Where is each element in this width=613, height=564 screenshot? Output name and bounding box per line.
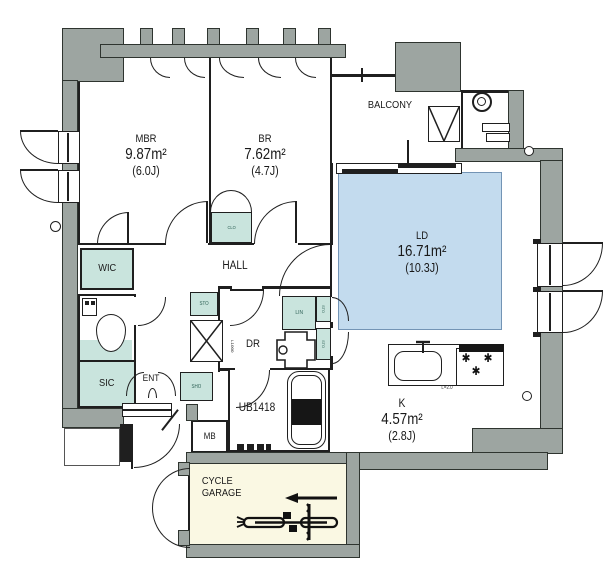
cabinet-door-arc: [332, 332, 349, 364]
bath-faucet-icon: [257, 444, 264, 450]
genkan-step: [122, 410, 172, 417]
kitchen-sink-icon: [394, 351, 442, 381]
k-jo: (2.8J): [388, 429, 415, 444]
lin-closet: LIN: [282, 296, 316, 330]
stove-burner-icon: ✱: [462, 352, 471, 365]
mbr-jo: (6.0J): [132, 164, 159, 179]
garage-line2: GARAGE: [202, 488, 258, 500]
br-jo: (4.7J): [251, 164, 278, 179]
ld-area: 16.71m²: [398, 243, 447, 261]
stove-burner-icon: ✱: [484, 352, 493, 365]
wall-merlon: [246, 28, 259, 45]
k-area: 4.57m²: [381, 411, 422, 429]
window-arc: [563, 291, 603, 333]
garage-door-arc: [152, 508, 190, 548]
sliding-sash: [398, 164, 456, 168]
wall-merlon: [318, 28, 331, 45]
stove-burner-icon: ✱: [472, 365, 481, 378]
wall: [352, 452, 548, 470]
toilet-button: [91, 301, 95, 305]
wall-merlon: [207, 28, 220, 45]
clo-closet: CLO: [211, 212, 252, 243]
washing-machine-icon: [190, 320, 223, 362]
mbr-area: 9.87m²: [125, 146, 166, 164]
dr-label: DR: [240, 338, 266, 350]
sto-label: STO: [199, 301, 208, 307]
bathtub-dark-band: [292, 399, 321, 425]
window-sash: [67, 172, 69, 201]
bath-faucet-icon: [237, 444, 244, 450]
balcony-rail-tick: [361, 68, 363, 82]
drain-cap-inner: [477, 97, 486, 106]
window-sash: [549, 245, 551, 285]
wall: [100, 44, 346, 58]
ld-jo: (10.3J): [405, 261, 438, 276]
sho-label: SHO: [192, 384, 202, 390]
window-arc: [563, 243, 603, 286]
wall-line: [330, 163, 333, 245]
mbr-name: MBR: [135, 133, 156, 146]
clo-label: CLO: [227, 225, 235, 230]
br-name: BR: [258, 133, 271, 146]
wall-line: [218, 368, 230, 371]
step-icon: [486, 133, 510, 142]
door-panel: [131, 424, 133, 469]
window: [58, 131, 80, 164]
wall: [472, 428, 563, 454]
door-arc: [279, 244, 330, 296]
ub-label: UB1418: [232, 402, 281, 415]
door-stop-icon: [148, 388, 157, 398]
wall: [395, 42, 461, 92]
faucet-icon: [412, 339, 434, 355]
bath-faucet-icon: [247, 444, 254, 450]
sliding-sash: [342, 169, 398, 173]
wall-merlon: [140, 28, 153, 45]
door-line: [330, 245, 332, 297]
entrance-door-arc: [134, 424, 180, 468]
genkan-step: [122, 403, 172, 410]
door-arc: [138, 297, 166, 326]
vent-icon: [522, 391, 532, 401]
window-sash: [67, 133, 69, 162]
counter-length-label: L=2.0: [434, 386, 460, 392]
wall: [186, 452, 350, 464]
step-icon: [482, 123, 510, 132]
window-arc: [20, 170, 58, 203]
mb-label: MB: [204, 432, 216, 442]
door-arc: [230, 290, 264, 326]
k-label: K 4.57m² (2.8J): [364, 392, 440, 448]
washbasin-icon: [274, 330, 318, 370]
wall-line: [461, 92, 463, 148]
balcony-label: BALCONY: [357, 100, 424, 112]
sto-upper-closet: STO: [316, 296, 331, 322]
wall: [62, 408, 124, 428]
wall-merlon: [283, 28, 296, 45]
window-sash-mark: [533, 239, 541, 244]
k-name: K: [399, 396, 406, 410]
window-sash-mark: [533, 332, 541, 337]
sto-label: STO: [321, 340, 326, 348]
water-heater-icon: [428, 106, 460, 142]
garage-line1: CYCLE: [202, 476, 258, 488]
vent-icon: [50, 221, 61, 232]
mbr-label: MBR 9.87m² (6.0J): [110, 128, 182, 184]
washer-pan-label: L1000: [225, 330, 234, 362]
wall: [186, 544, 360, 558]
hall-label: HALL: [212, 260, 258, 273]
sho-cabinet: SHO: [180, 372, 213, 401]
br-area: 7.62m²: [244, 146, 285, 164]
toilet-button: [85, 301, 89, 305]
sic-label: SIC: [99, 378, 114, 390]
balcony-rail: [332, 74, 396, 77]
wall: [186, 404, 198, 421]
ld-label: LD 16.71m² (10.3J): [384, 224, 460, 282]
window-sash: [549, 293, 551, 331]
wall: [346, 452, 360, 558]
wall-merlon: [172, 28, 185, 45]
sto-label: STO: [321, 305, 326, 313]
garage-door-arc: [152, 468, 190, 508]
cycle-garage-label: CYCLE GARAGE: [202, 476, 258, 499]
wic-label: WIC: [98, 263, 116, 275]
vent-icon: [524, 146, 534, 156]
mb-box: MB: [191, 420, 228, 453]
floor-plan: WIC SIC MB: [0, 0, 613, 564]
ld-name: LD: [416, 230, 428, 243]
wic-room: WIC: [80, 248, 134, 290]
porch-outline: [64, 428, 120, 466]
lin-label: LIN: [295, 310, 303, 316]
window-arc: [20, 131, 58, 164]
window: [58, 170, 80, 203]
br-label: BR 7.62m² (4.7J): [229, 128, 301, 184]
ent-label: ENT: [139, 374, 164, 384]
sto-lower-closet: STO: [316, 328, 331, 360]
window-sash-mark: [533, 287, 541, 292]
bath-faucet-icon: [266, 444, 271, 450]
sto-hall-closet: STO: [190, 292, 218, 316]
